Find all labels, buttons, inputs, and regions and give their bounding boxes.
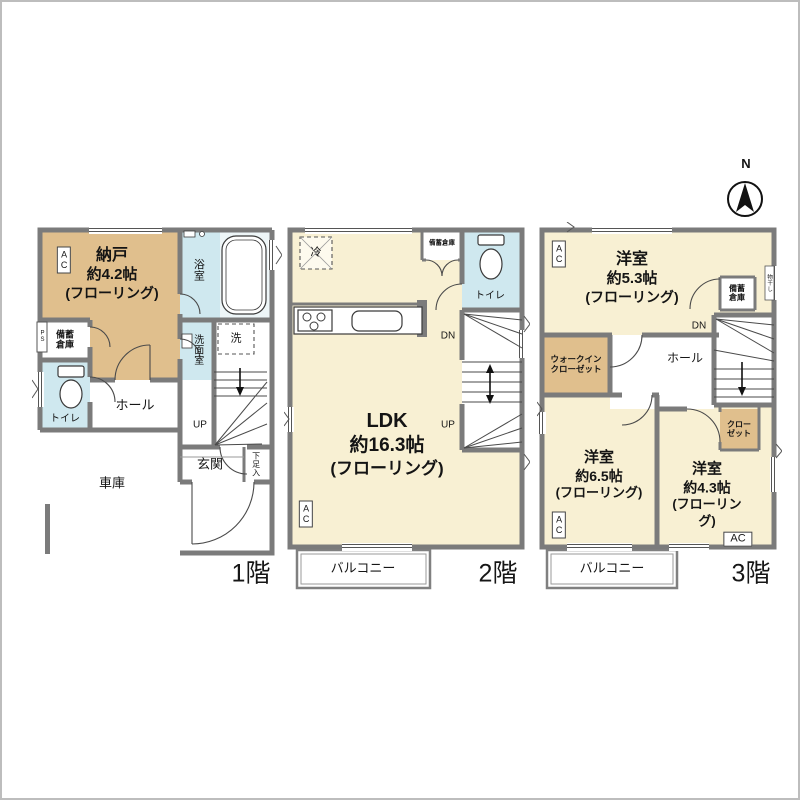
f2-toilet-fixture [478,235,504,279]
compass: N [716,158,776,228]
stove-icon [298,310,332,331]
f2-storage-label: 備蓄倉庫 [429,239,455,246]
f3-balcony-label: バルコニー [580,562,645,577]
f2-ldk-label: LDK 約16.3帖 (フローリング) [330,409,443,479]
f3-ac-top-label: AC [552,241,566,268]
toilet-bowl-icon [60,380,82,408]
f3-room43-label: 洋室 約4.3帖 (フローリング) [670,461,745,530]
f1-hall-label: ホール [115,399,154,414]
f1-ps-label: PS [39,331,46,344]
f1-storage-label: 備蓄倉庫 [54,330,76,351]
f2-ac-label: AC [299,501,313,528]
sink-icon [352,311,402,331]
f3-laundry-label: 物干し [766,274,772,292]
f1-genkan-label: 玄関 [197,458,223,473]
garage-wall-stub [45,504,50,554]
f1-nando-label: 納戸 約4.2帖 (フローリング) [65,246,158,302]
f1-washer-label: 洗 [231,333,242,346]
floor1: AC 納戸 約4.2帖 (フローリング) 浴室 洗 洗面室 備蓄倉庫 PS トイ… [32,222,282,600]
f1-shoebox-label: 下足入 [251,451,260,477]
f1-up-label: UP [193,419,207,431]
f3-dn-label: DN [692,320,706,332]
f3-storage-label: 備蓄倉庫 [728,284,746,302]
compass-north-label: N [741,156,750,171]
f1-garage-label: 車庫 [99,477,125,492]
f1-bath-label: 浴室 [192,259,205,282]
f3-ac-left-label: AC [552,512,566,539]
f3-ac-right-label: AC [723,532,752,547]
f3-room65-label: 洋室 約6.5帖 (フローリング) [556,449,643,502]
floorplan-page: N [0,0,800,800]
f2-floor-label: 2階 [479,560,518,589]
f3-closet-label: クローゼット [725,420,753,438]
f3-floor-label: 3階 [732,560,771,589]
f2-balcony-label: バルコニー [331,562,396,577]
f3-wic-label: ウォークインクローゼット [548,355,604,375]
f1-floor-label: 1階 [232,560,271,589]
f3-hall-label: ホール [667,352,703,366]
f1-toilet-label: トイレ [50,413,80,425]
f2-fridge-label: 冷 [311,247,322,260]
floor3: AC 洋室 約5.3帖 (フローリング) 備蓄倉庫 物干し DN ホール ウォー… [537,222,782,600]
kitchen-counter [294,307,422,334]
bath-faucet-icon [184,231,195,237]
f2-toilet-label: トイレ [475,290,505,302]
toilet-tank-icon [58,366,84,377]
hall-room [610,335,714,409]
floor2: 冷 備蓄倉庫 トイレ DN UP LDK 約16.3帖 (フローリング) AC … [284,222,530,600]
f2-dn-label: DN [441,330,455,342]
f3-room53-label: 洋室 約5.3帖 (フローリング) [585,250,678,306]
f1-washroom-label: 洗面室 [191,334,203,366]
